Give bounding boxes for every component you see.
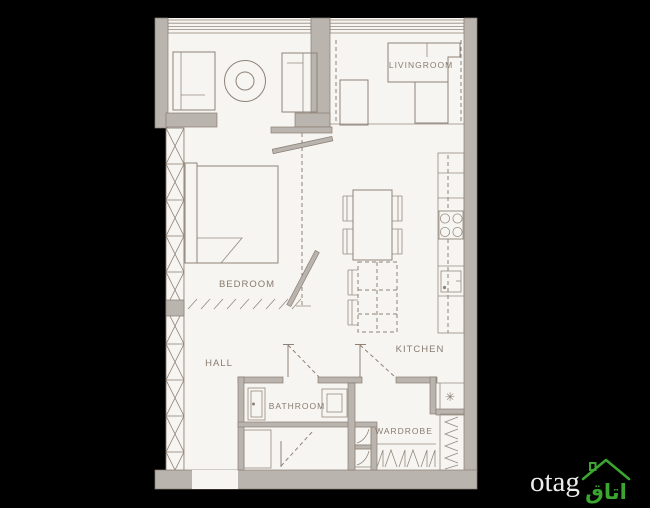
room-label-kitchen: KITCHEN bbox=[396, 344, 445, 355]
wall-right bbox=[464, 18, 477, 472]
lattice-window-wall bbox=[166, 128, 184, 470]
screenshot-canvas: ✳ LIVINGROOM BEDROOM HALL KITCHEN BATHRO… bbox=[0, 0, 650, 508]
floor-plan: ✳ LIVINGROOM BEDROOM HALL KITCHEN BATHRO… bbox=[0, 0, 650, 508]
kitchen-step-wall bbox=[430, 377, 436, 414]
brand-text: otag bbox=[530, 466, 580, 498]
wall-stub bbox=[166, 300, 184, 316]
room-label-bathroom: BATHROOM bbox=[269, 401, 325, 411]
chimney-icon bbox=[590, 463, 596, 470]
freezer-symbol: ✳ bbox=[445, 390, 455, 404]
room-label-hall: HALL bbox=[205, 358, 233, 369]
room-label-bedroom: BEDROOM bbox=[219, 279, 275, 290]
room-label-livingroom: LIVINGROOM bbox=[389, 60, 453, 70]
wall-balcony-bottom bbox=[166, 113, 217, 127]
logo-house-roof-icon bbox=[583, 460, 629, 479]
watermark: otag اتاق bbox=[530, 460, 629, 504]
room-label-wardrobe: WARDROBE bbox=[375, 426, 433, 436]
sliding-door-track bbox=[271, 127, 332, 133]
wall-top-left bbox=[155, 18, 168, 128]
logo-text: اتاق bbox=[585, 480, 627, 504]
entry-opening bbox=[192, 470, 238, 489]
wall-divider-foot bbox=[295, 113, 330, 127]
